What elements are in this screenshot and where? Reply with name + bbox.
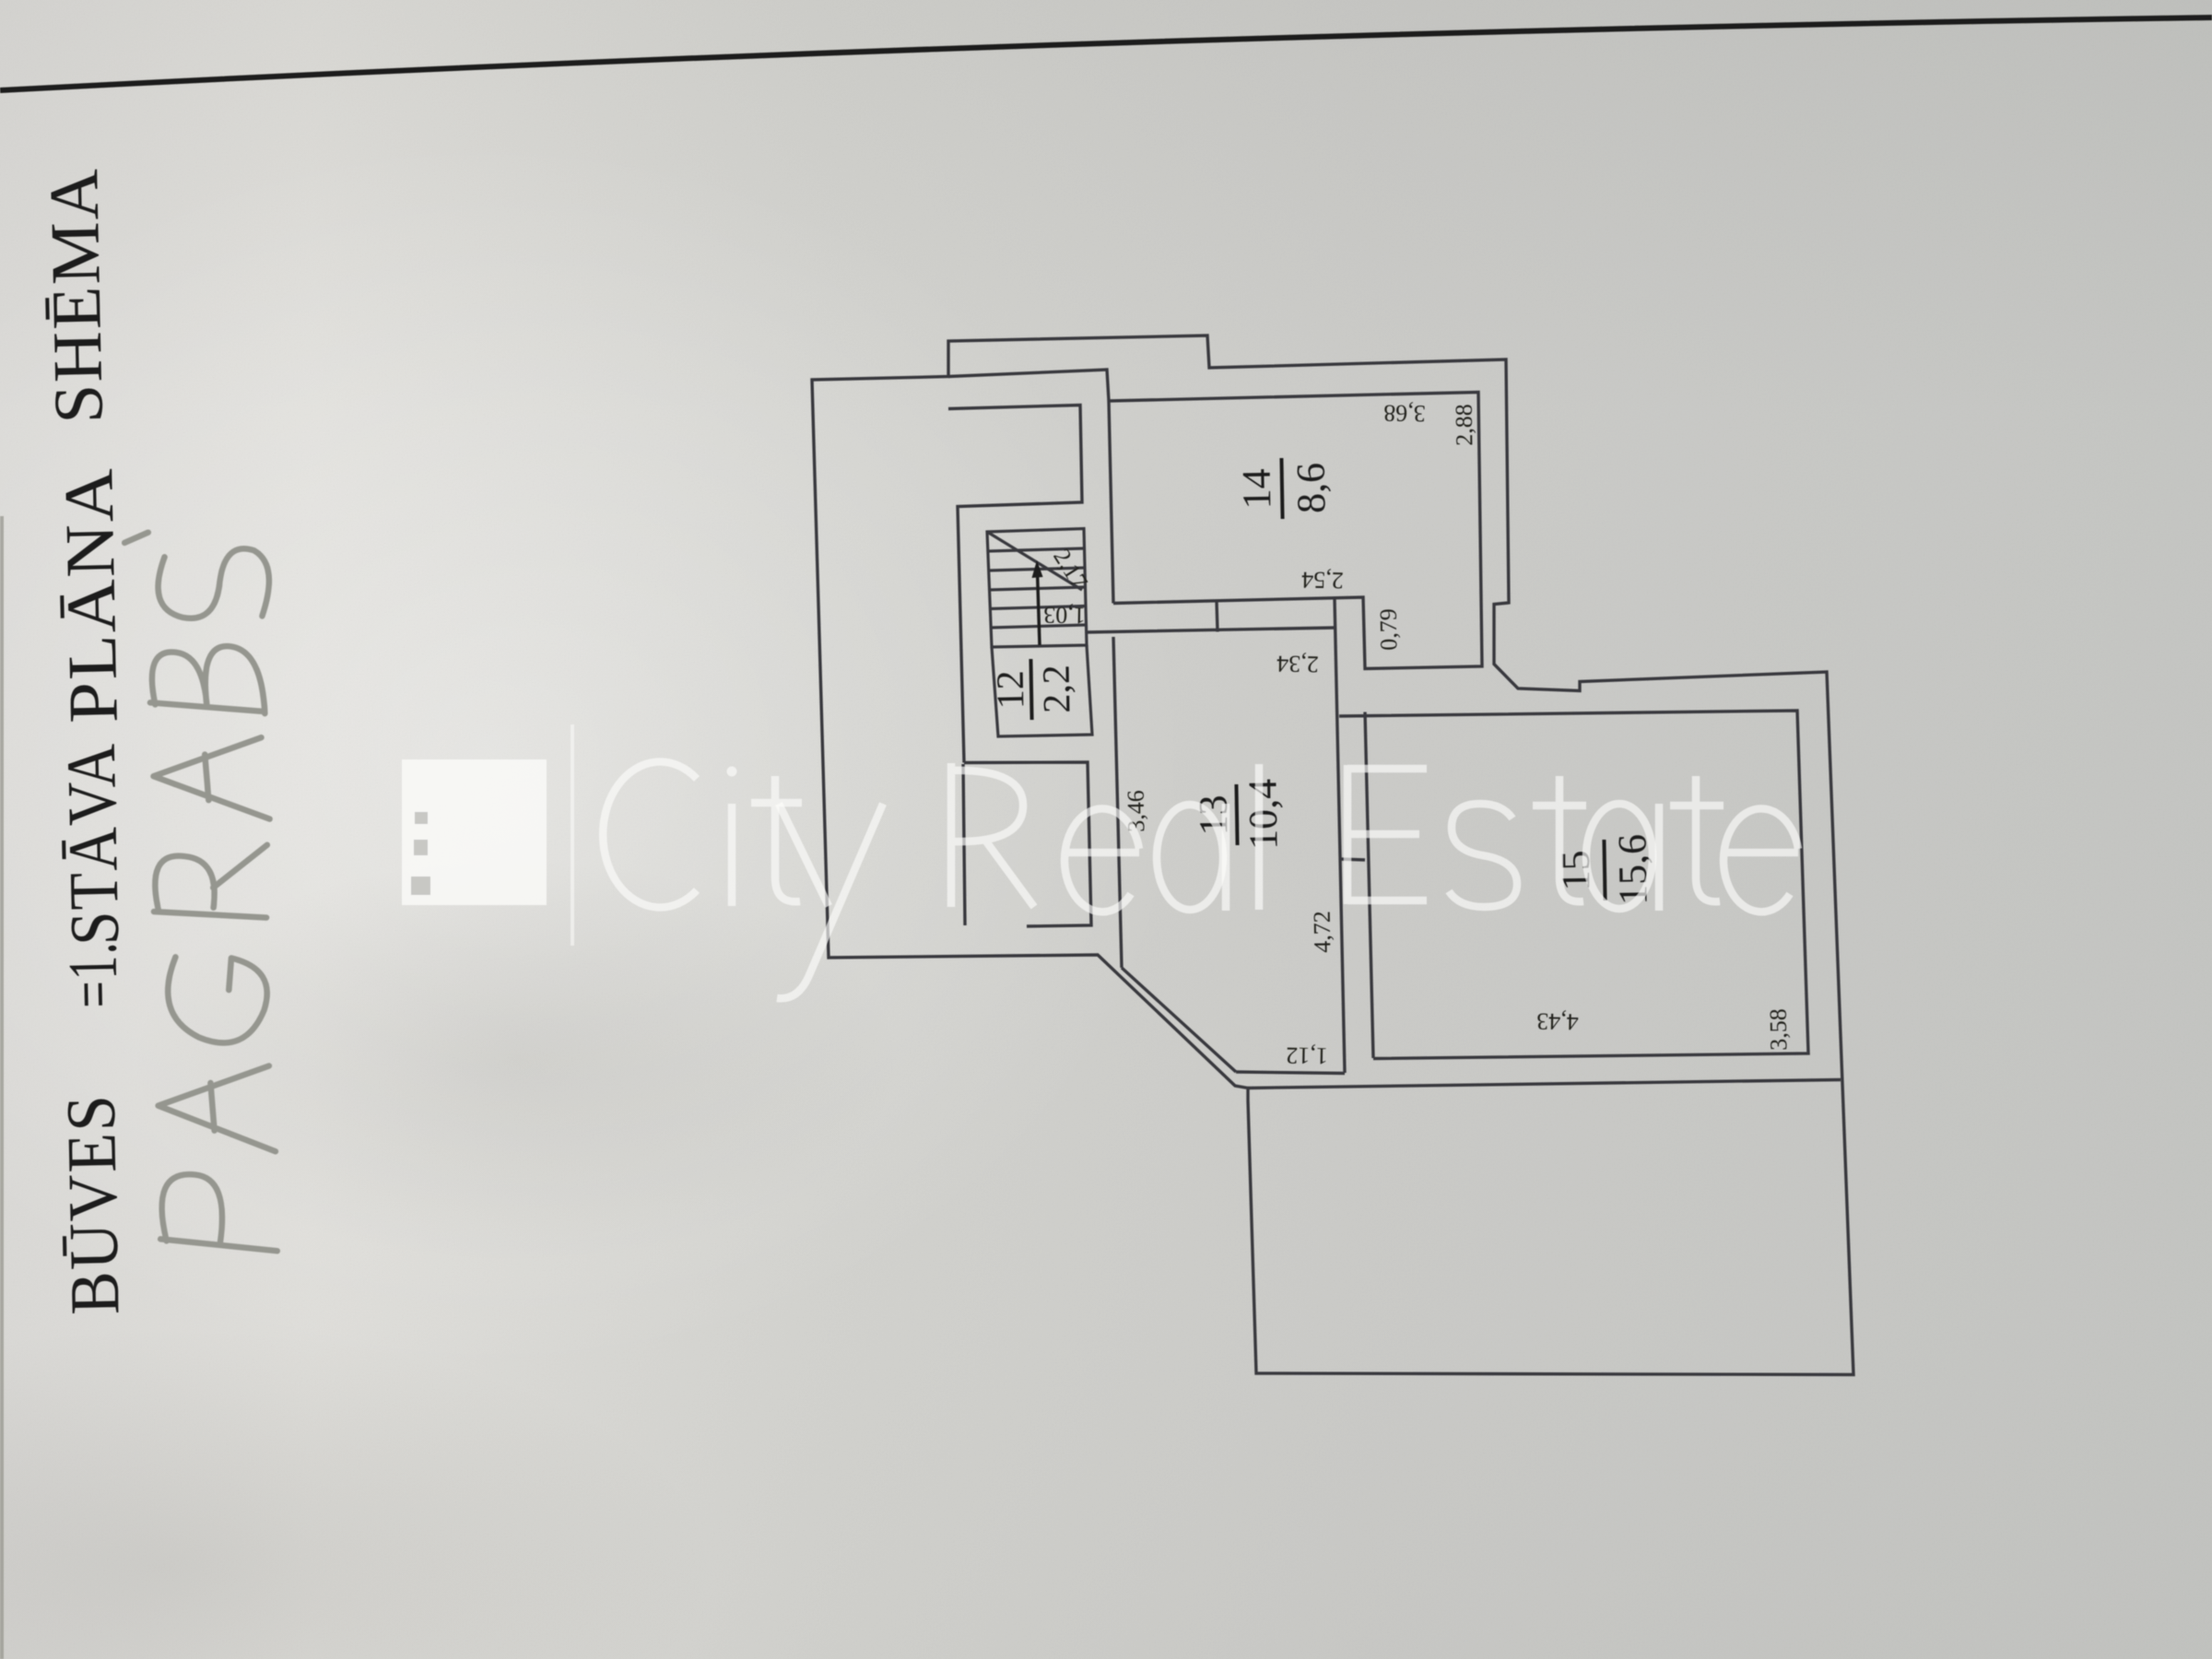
svg-text:1,03: 1,03 bbox=[1043, 602, 1086, 629]
svg-text:2,88: 2,88 bbox=[1451, 404, 1478, 446]
svg-text:8,6: 8,6 bbox=[1288, 463, 1335, 514]
svg-text:1,12: 1,12 bbox=[1286, 1042, 1328, 1070]
svg-text:0,79: 0,79 bbox=[1375, 608, 1403, 651]
svg-text:14: 14 bbox=[1234, 468, 1280, 510]
svg-text:BŪVES: BŪVES bbox=[53, 1093, 135, 1316]
svg-text:3,58: 3,58 bbox=[1765, 1008, 1793, 1051]
svg-text:12: 12 bbox=[990, 670, 1033, 710]
svg-text:STĀVA: STĀVA bbox=[53, 742, 135, 947]
svg-text:4,43: 4,43 bbox=[1536, 1008, 1579, 1036]
svg-text:PLĀNA: PLĀNA bbox=[50, 466, 133, 724]
svg-text:SHĒMA: SHĒMA bbox=[35, 167, 118, 425]
svg-text:2,2: 2,2 bbox=[1036, 665, 1079, 713]
svg-text:3,68: 3,68 bbox=[1383, 400, 1426, 428]
svg-text:4,72: 4,72 bbox=[1309, 911, 1336, 953]
svg-text:=1.: =1. bbox=[53, 941, 132, 1009]
svg-text:2,54: 2,54 bbox=[1301, 567, 1344, 594]
svg-text:10,4: 10,4 bbox=[1240, 779, 1286, 851]
svg-text:2,34: 2,34 bbox=[1277, 651, 1319, 678]
